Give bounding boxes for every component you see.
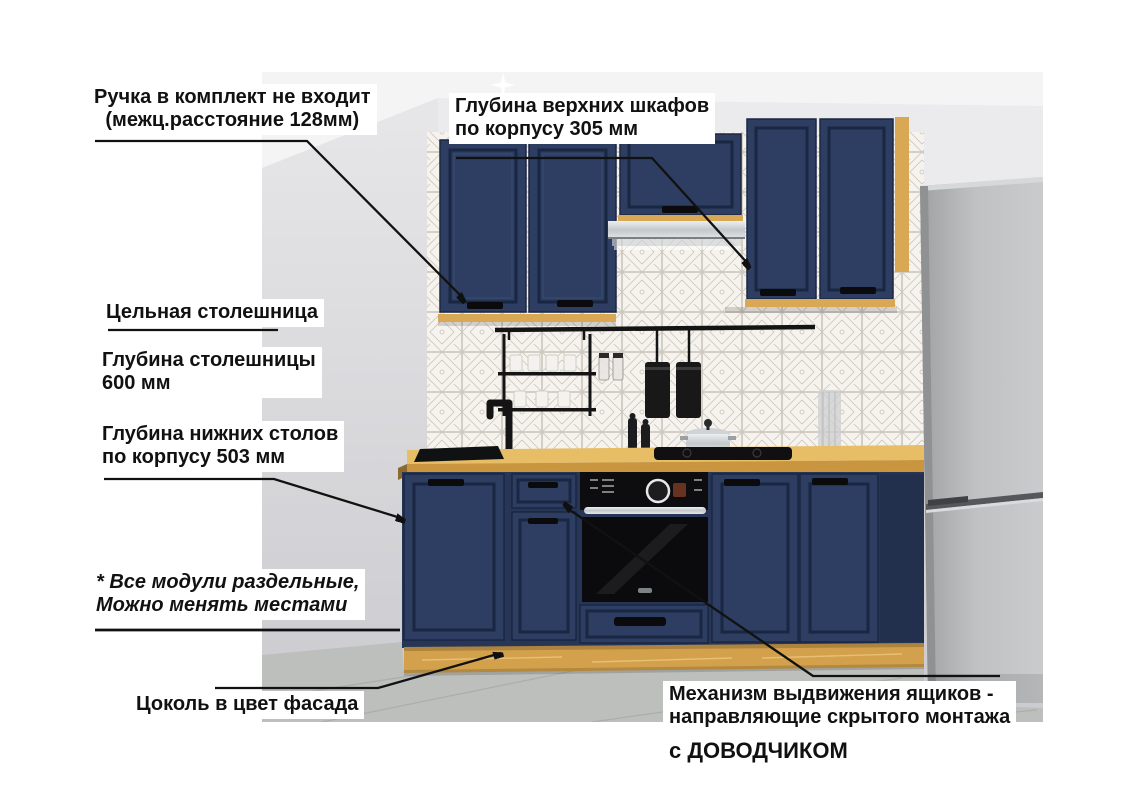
glass-carafe (818, 390, 841, 452)
label-text: 600 мм (102, 372, 316, 395)
cabinet-handle (614, 617, 666, 626)
cabinet-bottom-oak-strip (618, 215, 743, 221)
label-plinth-note: Цоколь в цвет фасада (130, 691, 364, 719)
cabinet-handle (557, 300, 593, 307)
label-countertop-depth: Глубина столешницы 600 мм (96, 347, 322, 398)
cabinet-handle (724, 479, 760, 486)
label-base-cabinet-depth: Глубина нижних столов по корпусу 503 мм (96, 421, 344, 472)
label-text: Глубина столешницы (102, 349, 316, 372)
label-text: с ДОВОДЧИКОМ (669, 738, 1010, 764)
label-text: Глубина верхних шкафов (455, 95, 709, 118)
upper-cabinet-over-hood (618, 134, 743, 221)
cooktop (654, 447, 792, 460)
label-text: по корпусу 503 мм (102, 446, 338, 469)
cabinet-handle (528, 518, 558, 524)
label-text: * Все модули раздельные, (96, 571, 359, 594)
shadow (725, 307, 897, 313)
label-text: Можно менять местами (96, 594, 359, 617)
label-drawer-mechanism: Механизм выдвижения ящиков - направляющи… (663, 681, 1016, 767)
oven-dial (647, 480, 669, 502)
cabinet-bottom-oak-strip (438, 314, 616, 322)
oven-handle (584, 507, 706, 514)
label-upper-cabinet-depth: Глубина верхних шкафов по корпусу 305 мм (449, 93, 715, 144)
cabinet-side-oak-panel (895, 117, 909, 272)
built-in-oven (580, 472, 708, 602)
range-hood (608, 221, 745, 250)
label-modules-note: * Все модули раздельные, Можно менять ме… (90, 569, 365, 620)
label-text: (межц.расстояние 128мм) (94, 109, 371, 132)
label-text: Цельная столешница (106, 301, 318, 324)
label-text: направляющие скрытого монтажа (669, 706, 1010, 729)
label-text: Механизм выдвижения ящиков - (669, 683, 1010, 706)
cabinet-bottom-oak-strip (745, 299, 895, 307)
cabinet-handle (467, 302, 503, 309)
cabinet-handle (428, 479, 464, 486)
cabinet-handle (528, 482, 558, 488)
base-cabinets (402, 472, 924, 648)
cabinet-handle (662, 206, 698, 213)
cabinet-handle (812, 478, 848, 485)
label-solid-countertop: Цельная столешница (100, 299, 324, 327)
cabinet-handle (760, 289, 796, 296)
upper-cabinet-right (745, 117, 909, 307)
annotated-kitchen-diagram: Ручка в комплект не входит (межц.расстоя… (0, 0, 1123, 794)
label-text: Ручка в комплект не входит (94, 86, 371, 109)
label-handle-note: Ручка в комплект не входит (межц.расстоя… (88, 84, 377, 135)
fridge (920, 177, 1043, 703)
cabinet-handle (840, 287, 876, 294)
label-text: Глубина нижних столов (102, 423, 338, 446)
kitchen-photo (262, 72, 1043, 722)
drawer-unit (512, 474, 576, 640)
label-text: Цоколь в цвет фасада (136, 693, 358, 716)
label-text: по корпусу 305 мм (455, 118, 709, 141)
